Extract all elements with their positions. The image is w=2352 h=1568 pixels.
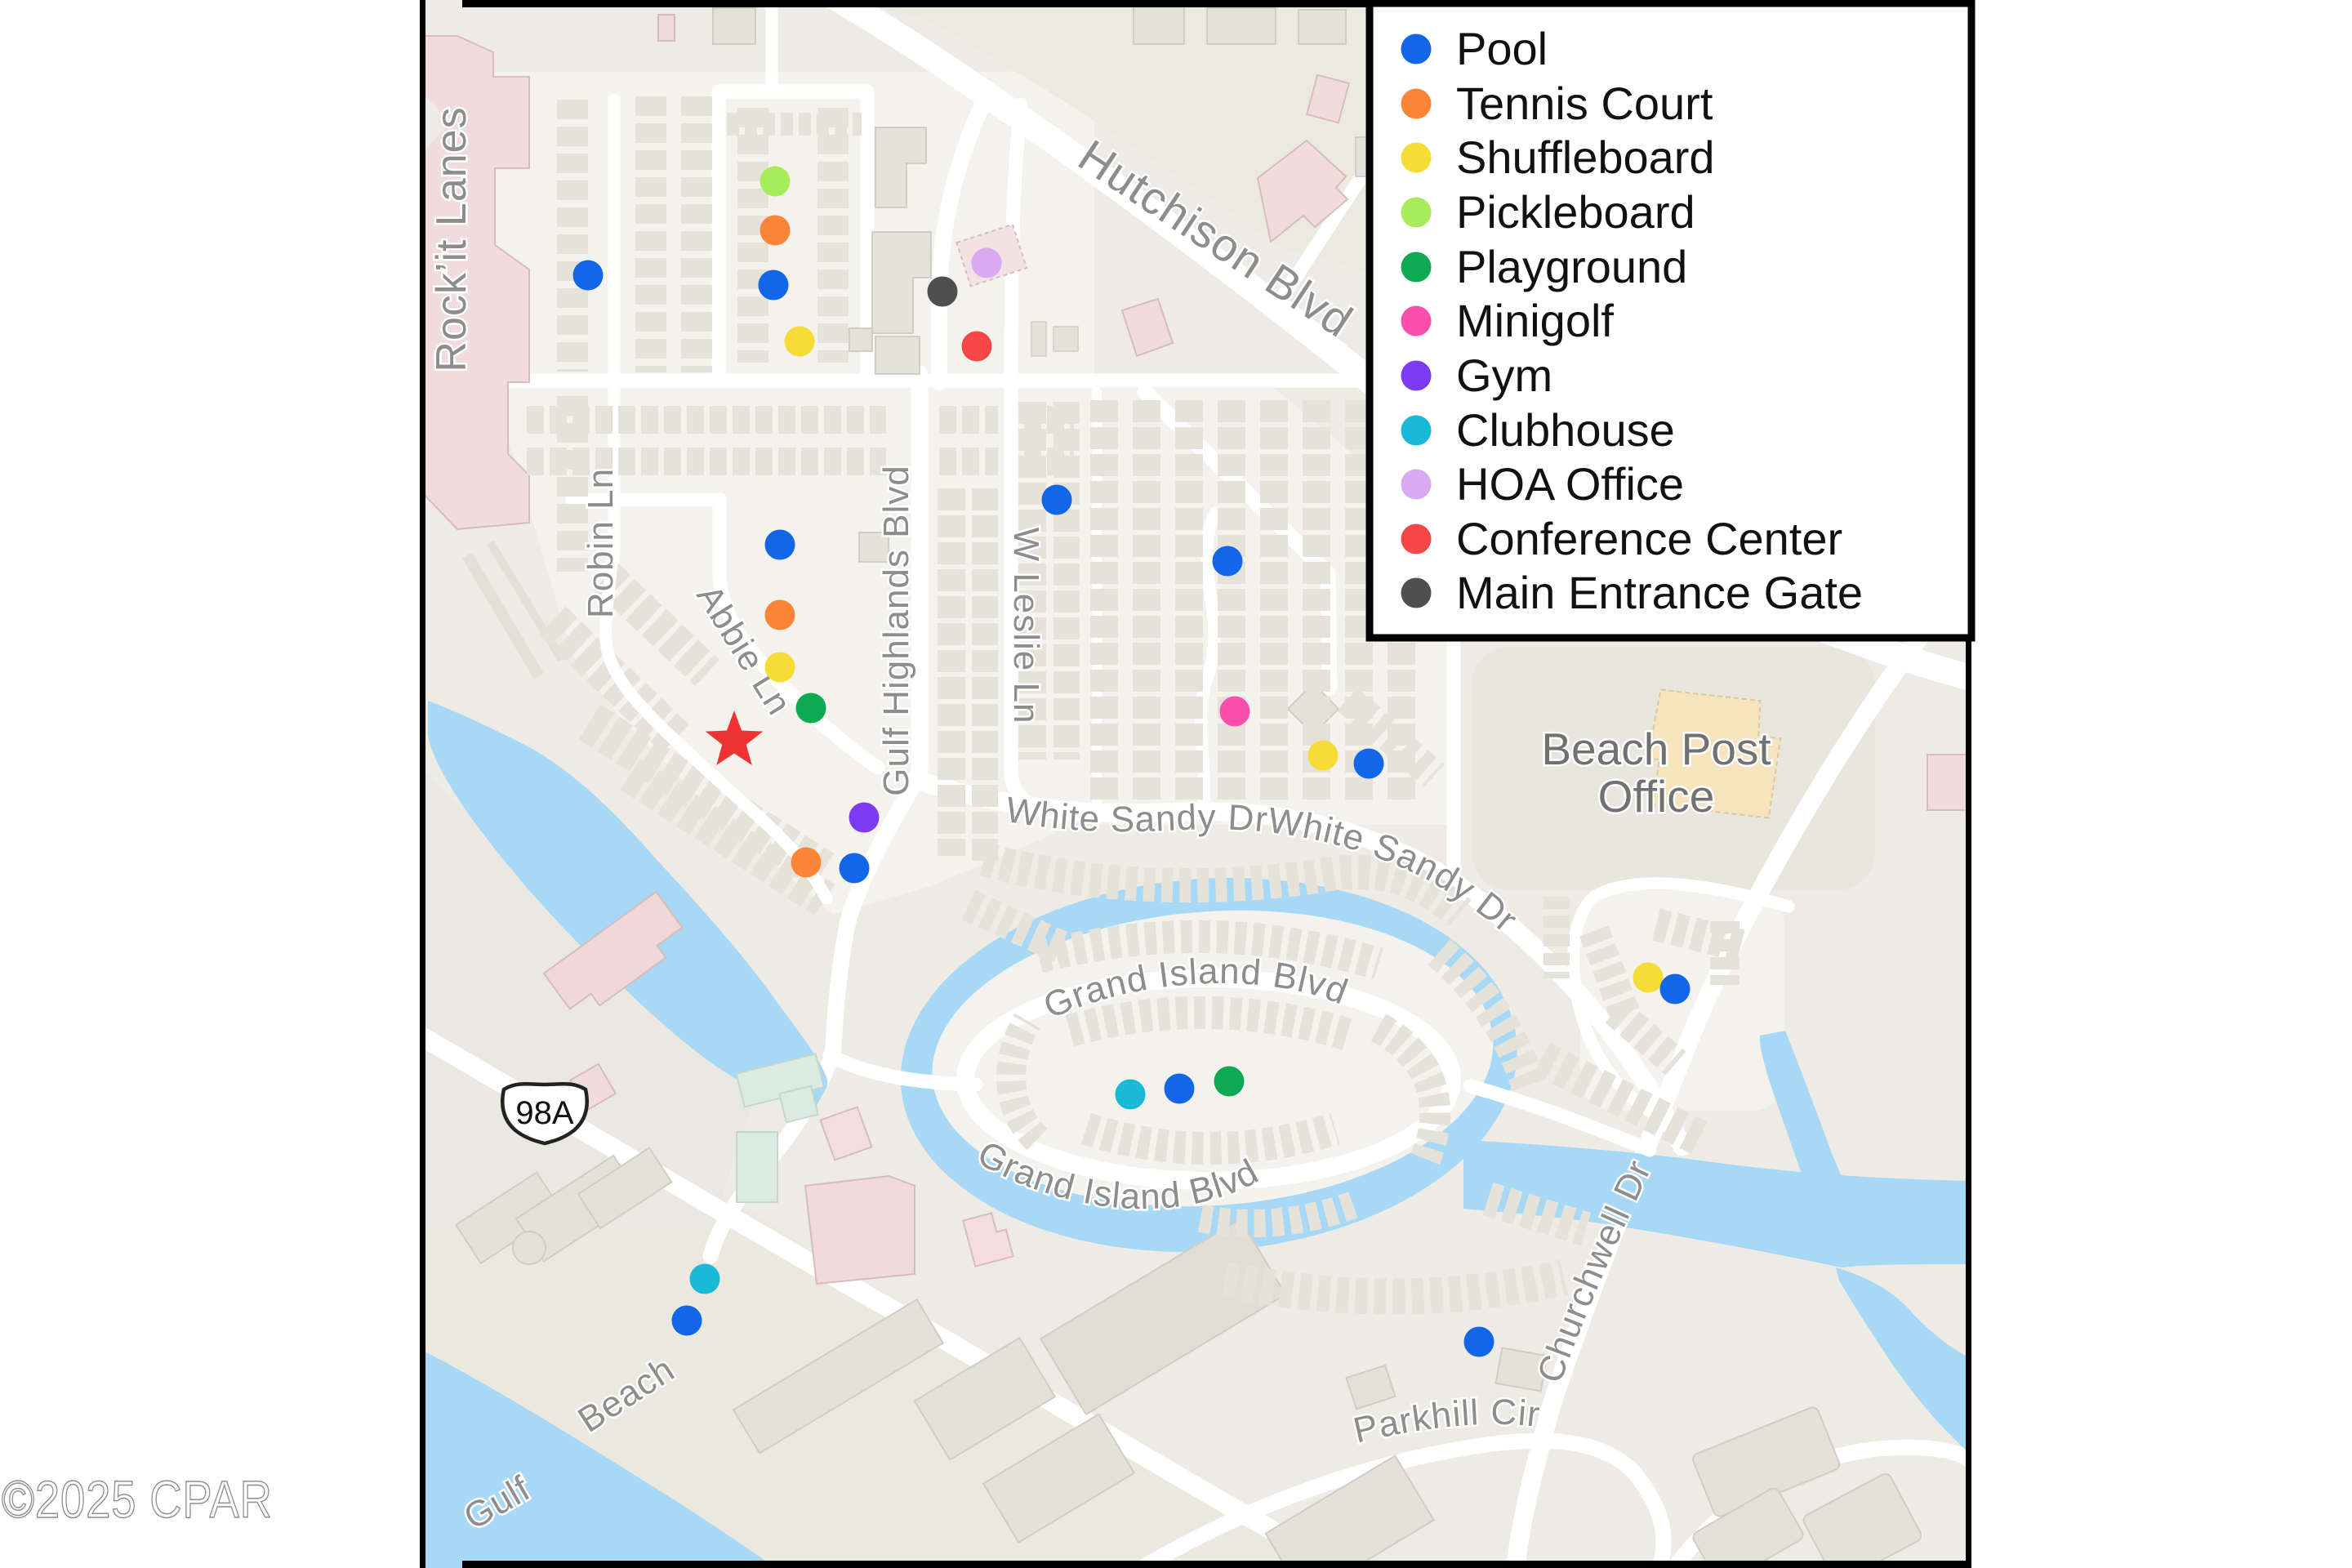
svg-text:Shuffleboard: Shuffleboard [1456, 131, 1715, 183]
svg-text:Gym: Gym [1456, 350, 1552, 401]
svg-text:Robin Ln: Robin Ln [581, 468, 621, 618]
svg-text:Clubhouse: Clubhouse [1456, 404, 1675, 456]
svg-text:Office: Office [1598, 771, 1715, 822]
svg-text:Main Entrance Gate: Main Entrance Gate [1456, 567, 1863, 618]
svg-text:Beach Post: Beach Post [1541, 724, 1771, 774]
svg-text:Minigolf: Minigolf [1456, 295, 1614, 346]
svg-text:Pickleboard: Pickleboard [1456, 186, 1695, 238]
svg-text:Rock’it Lanes: Rock’it Lanes [428, 106, 475, 372]
svg-text:W Leslie Ln: W Leslie Ln [1006, 528, 1046, 724]
svg-text:©2025 CPAR: ©2025 CPAR [2, 1470, 273, 1529]
svg-text:HOA Office: HOA Office [1456, 458, 1684, 510]
svg-text:Playground: Playground [1456, 241, 1687, 292]
svg-text:Pool: Pool [1456, 23, 1548, 74]
svg-text:Conference Center: Conference Center [1456, 513, 1842, 564]
svg-text:Gulf Highlands Blvd: Gulf Highlands Blvd [876, 465, 916, 795]
svg-text:Tennis Court: Tennis Court [1456, 78, 1713, 129]
svg-text:98A: 98A [515, 1095, 573, 1131]
